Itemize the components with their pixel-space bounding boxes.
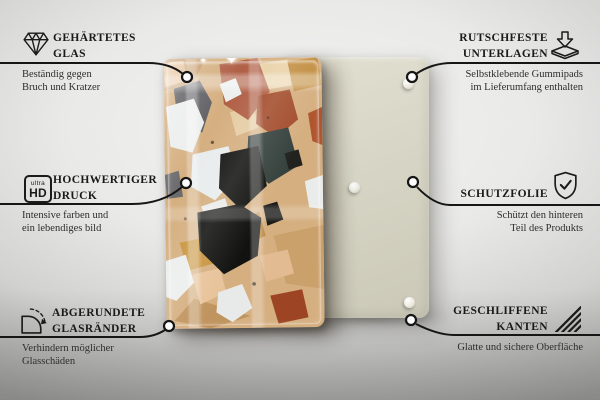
desc-line: Beständig gegen bbox=[22, 68, 182, 81]
desc-line: Bruch und Kratzer bbox=[22, 81, 182, 94]
feature-desc-rounded-edges: Verhindern möglicher Glasschäden bbox=[22, 342, 182, 368]
title-line: ABGERUNDETE bbox=[52, 305, 202, 321]
diamond-icon bbox=[22, 31, 50, 62]
feature-desc-polished-edges: Glatte und sichere Oberfläche bbox=[403, 341, 583, 354]
feature-title-antislip-pads: RUTSCHFESTE UNTERLAGEN bbox=[388, 30, 548, 62]
desc-line: Glasschäden bbox=[22, 355, 182, 368]
title-line: HOCHWERTIGER bbox=[53, 172, 203, 188]
target-ring bbox=[182, 72, 192, 82]
title-line: GLASRÄNDER bbox=[52, 321, 202, 337]
shield-check-icon bbox=[552, 171, 579, 205]
feature-title-tempered-glass: GEHÄRTETES GLAS bbox=[53, 30, 203, 62]
feature-title-rounded-edges: ABGERUNDETE GLASRÄNDER bbox=[52, 305, 202, 337]
feature-title-protective-film: SCHUTZFOLIE bbox=[388, 186, 548, 202]
title-line: GEHÄRTETES bbox=[53, 30, 203, 46]
feature-desc-tempered-glass: Beständig gegen Bruch und Kratzer bbox=[22, 68, 182, 94]
title-line: KANTEN bbox=[388, 319, 548, 335]
title-line: SCHUTZFOLIE bbox=[388, 186, 548, 202]
feature-title-print: HOCHWERTIGER DRUCK bbox=[53, 172, 203, 204]
desc-line: im Lieferumfang enthalten bbox=[403, 81, 583, 94]
desc-line: Verhindern möglicher bbox=[22, 342, 182, 355]
desc-line: Teil des Produkts bbox=[403, 222, 583, 235]
uhd-label-big: HD bbox=[29, 187, 47, 199]
feature-desc-print: Intensive farben und ein lebendiges bild bbox=[22, 209, 182, 235]
feature-desc-protective-film: Schützt den hinteren Teil des Produkts bbox=[403, 209, 583, 235]
feature-title-polished-edges: GESCHLIFFENE KANTEN bbox=[388, 303, 548, 335]
title-line: GLAS bbox=[53, 46, 203, 62]
title-line: UNTERLAGEN bbox=[388, 46, 548, 62]
desc-line: Intensive farben und bbox=[22, 209, 182, 222]
title-line: DRUCK bbox=[53, 188, 203, 204]
title-line: GESCHLIFFENE bbox=[388, 303, 548, 319]
title-line: RUTSCHFESTE bbox=[388, 30, 548, 46]
ultra-hd-icon: ultra HD bbox=[24, 175, 52, 203]
desc-line: ein lebendiges bild bbox=[22, 222, 182, 235]
hatched-edges-icon bbox=[554, 305, 581, 337]
desc-line: Glatte und sichere Oberfläche bbox=[403, 341, 583, 354]
rubber-pad-icon bbox=[550, 30, 580, 65]
desc-line: Schützt den hinteren bbox=[403, 209, 583, 222]
desc-line: Selbstklebende Gummipads bbox=[403, 68, 583, 81]
product-showcase: ✦ ✦ GEHÄRTETES G bbox=[0, 0, 600, 400]
feature-desc-antislip-pads: Selbstklebende Gummipads im Lieferumfang… bbox=[403, 68, 583, 94]
rounded-corner-icon bbox=[19, 307, 47, 340]
